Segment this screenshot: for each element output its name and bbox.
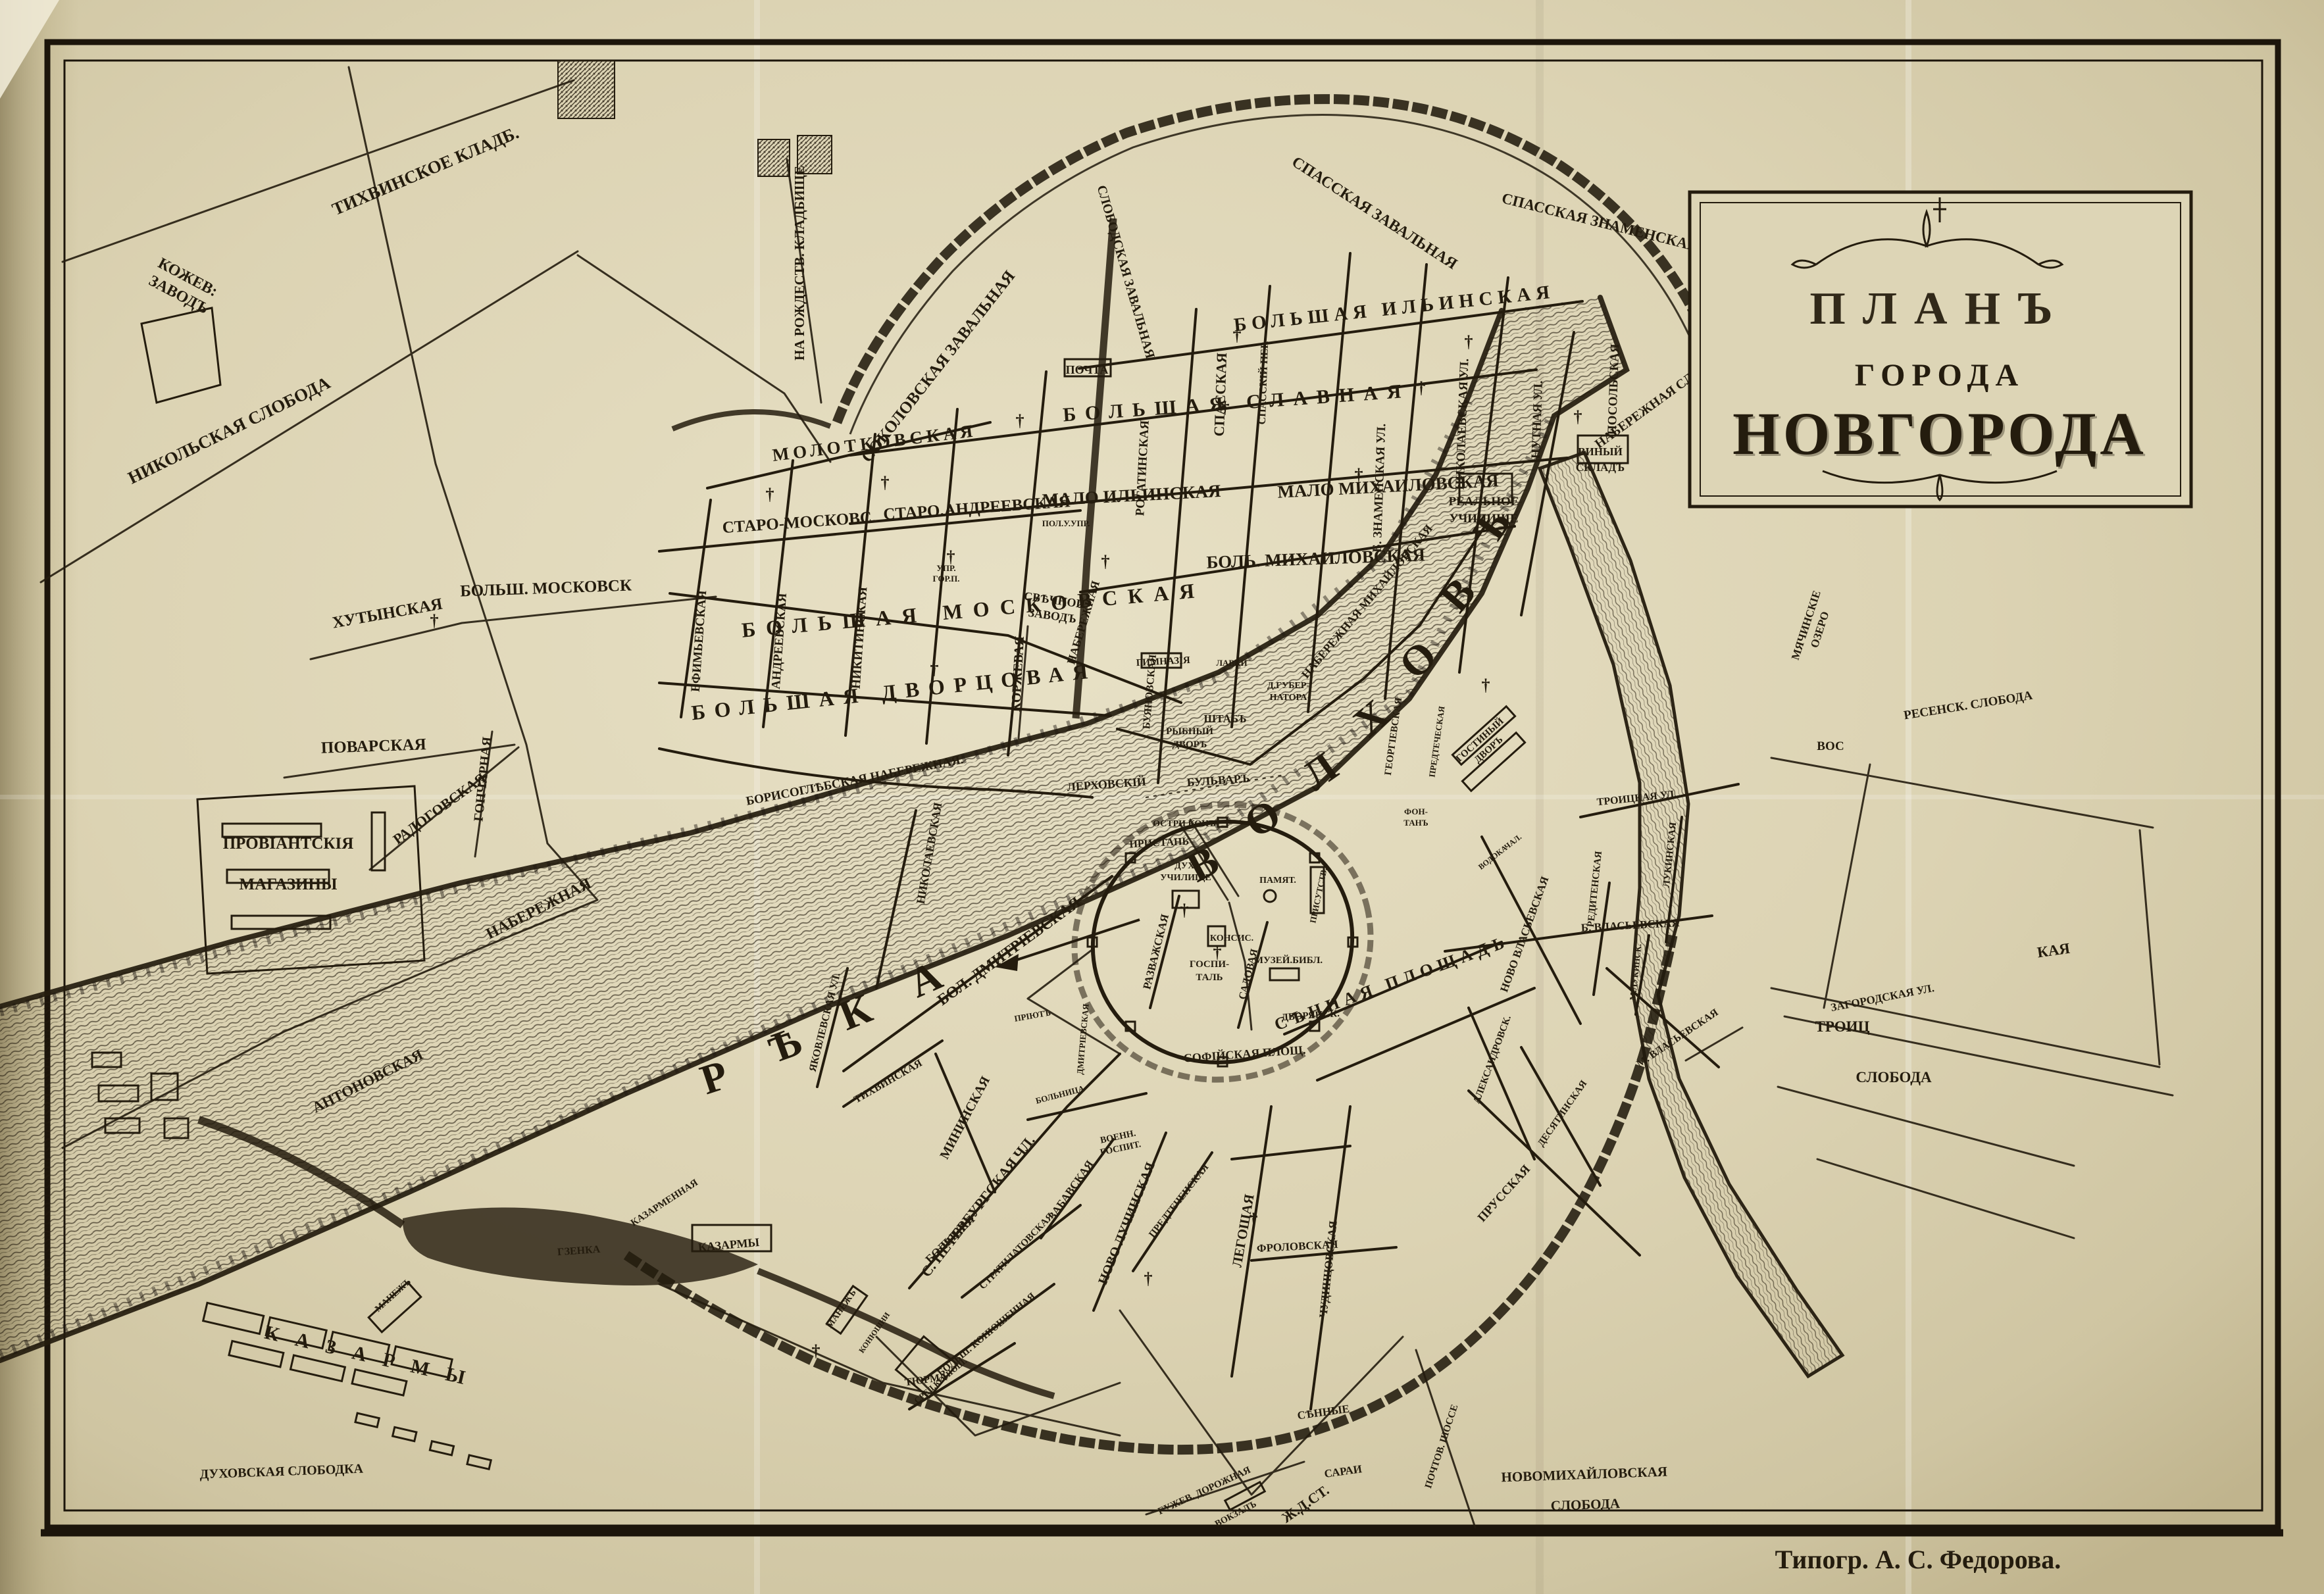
tikhvin-cemetery bbox=[558, 61, 615, 118]
map-label: ТРОИЦ bbox=[1815, 1018, 1870, 1035]
map-label: ПОЛ.У.УПР. bbox=[1042, 518, 1090, 528]
map-label: СПАССКАЯ bbox=[1211, 353, 1230, 437]
church-icon: † bbox=[430, 611, 439, 630]
title-cartouche: ПЛАНЪ ГОРОДА НОВГОРОДА bbox=[1690, 192, 2191, 507]
map-label: ШТАБЪ bbox=[1203, 712, 1246, 725]
church-icon: † bbox=[1144, 1269, 1153, 1288]
map-label: ПОЧТА bbox=[1066, 363, 1109, 376]
church-icon: † bbox=[766, 485, 774, 504]
title-line-1: ПЛАНЪ bbox=[1809, 284, 2069, 334]
church-icon: † bbox=[1221, 398, 1230, 417]
map-label: НУТНАЯ УЛ. bbox=[1529, 380, 1546, 459]
church-icon: † bbox=[1355, 465, 1363, 484]
novgorod-map: ТИХВИНСКОЕ КЛАДБ.КОЖЕВ:ЗАВОДЪНИКОЛЬСКАЯ … bbox=[0, 0, 2324, 1594]
title-line-2: ГОРОДА bbox=[1855, 358, 2025, 393]
map-label: КОНСИС. bbox=[1210, 934, 1253, 943]
church-icon: † bbox=[1213, 943, 1222, 962]
map-label: ОСТРИ КОНЪ bbox=[1153, 819, 1216, 829]
church-icon: † bbox=[930, 659, 939, 678]
church-icon: † bbox=[881, 473, 890, 492]
map-label: МУЗЕЙ.БИБЛ. bbox=[1254, 955, 1323, 966]
church-icon: † bbox=[1233, 326, 1242, 345]
printer-credit: Типогр. А. С. Федорова. bbox=[1775, 1545, 2061, 1574]
church-icon: † bbox=[812, 1341, 821, 1360]
map-label: ПОВАРСКАЯ bbox=[320, 735, 426, 757]
church-icon: † bbox=[1180, 901, 1189, 920]
map-label: ПАМЯТ. bbox=[1259, 876, 1296, 885]
church-icon: † bbox=[947, 547, 955, 566]
map-label: НА РОЖДЕСТВ. КЛАДБИЩЕ bbox=[792, 166, 807, 361]
novgorod-map-page: ТИХВИНСКОЕ КЛАДБ.КОЖЕВ:ЗАВОДЪНИКОЛЬСКАЯ … bbox=[0, 0, 2324, 1594]
church-icon: † bbox=[1574, 407, 1582, 426]
church-icon: † bbox=[1465, 332, 1473, 351]
church-icon: † bbox=[1016, 411, 1024, 430]
map-label: ЛАВКИ bbox=[1216, 658, 1247, 668]
cemetery bbox=[758, 139, 790, 176]
church-icon: † bbox=[1417, 378, 1426, 397]
church-icon: † bbox=[1250, 1210, 1258, 1229]
title-line-3: НОВГОРОДА bbox=[1732, 400, 2147, 467]
map-label: СЛОБОДА bbox=[1856, 1069, 1932, 1085]
map-label: ВОС bbox=[1817, 739, 1844, 753]
church-icon: † bbox=[1482, 676, 1490, 695]
church-icon: † bbox=[1101, 552, 1110, 571]
